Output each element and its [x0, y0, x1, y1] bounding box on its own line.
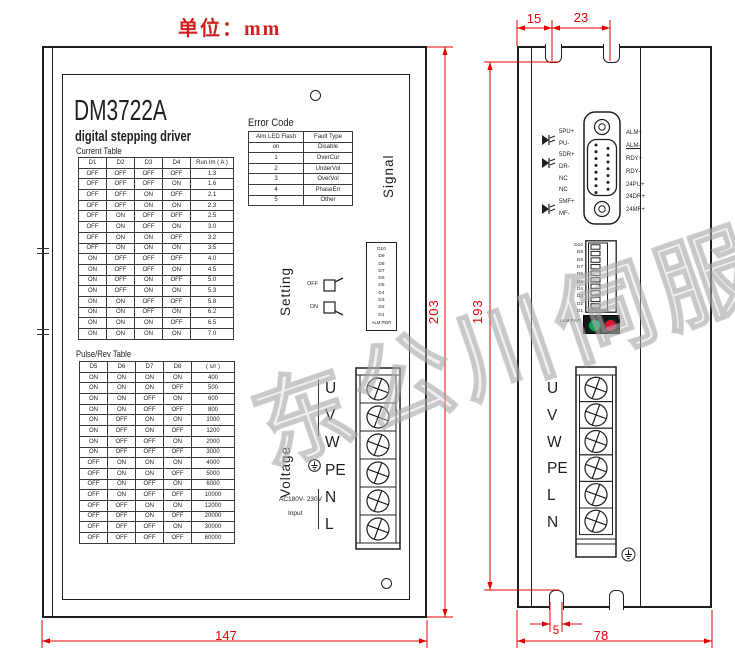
dimension-lines: [0, 0, 735, 662]
dim-side-width: 78: [588, 628, 614, 643]
dim-body-height: 203: [426, 284, 441, 324]
driver-dimension-drawing: 单位：mm DM3722A digital stepping driver Cu…: [0, 0, 735, 662]
dim-tab-pitch: 23: [569, 10, 593, 25]
dim-tab-offset: 15: [523, 11, 545, 26]
dim-front-width: 147: [212, 628, 240, 643]
dim-mount-height: 193: [470, 284, 485, 324]
dim-slot-width: 5: [550, 625, 562, 637]
